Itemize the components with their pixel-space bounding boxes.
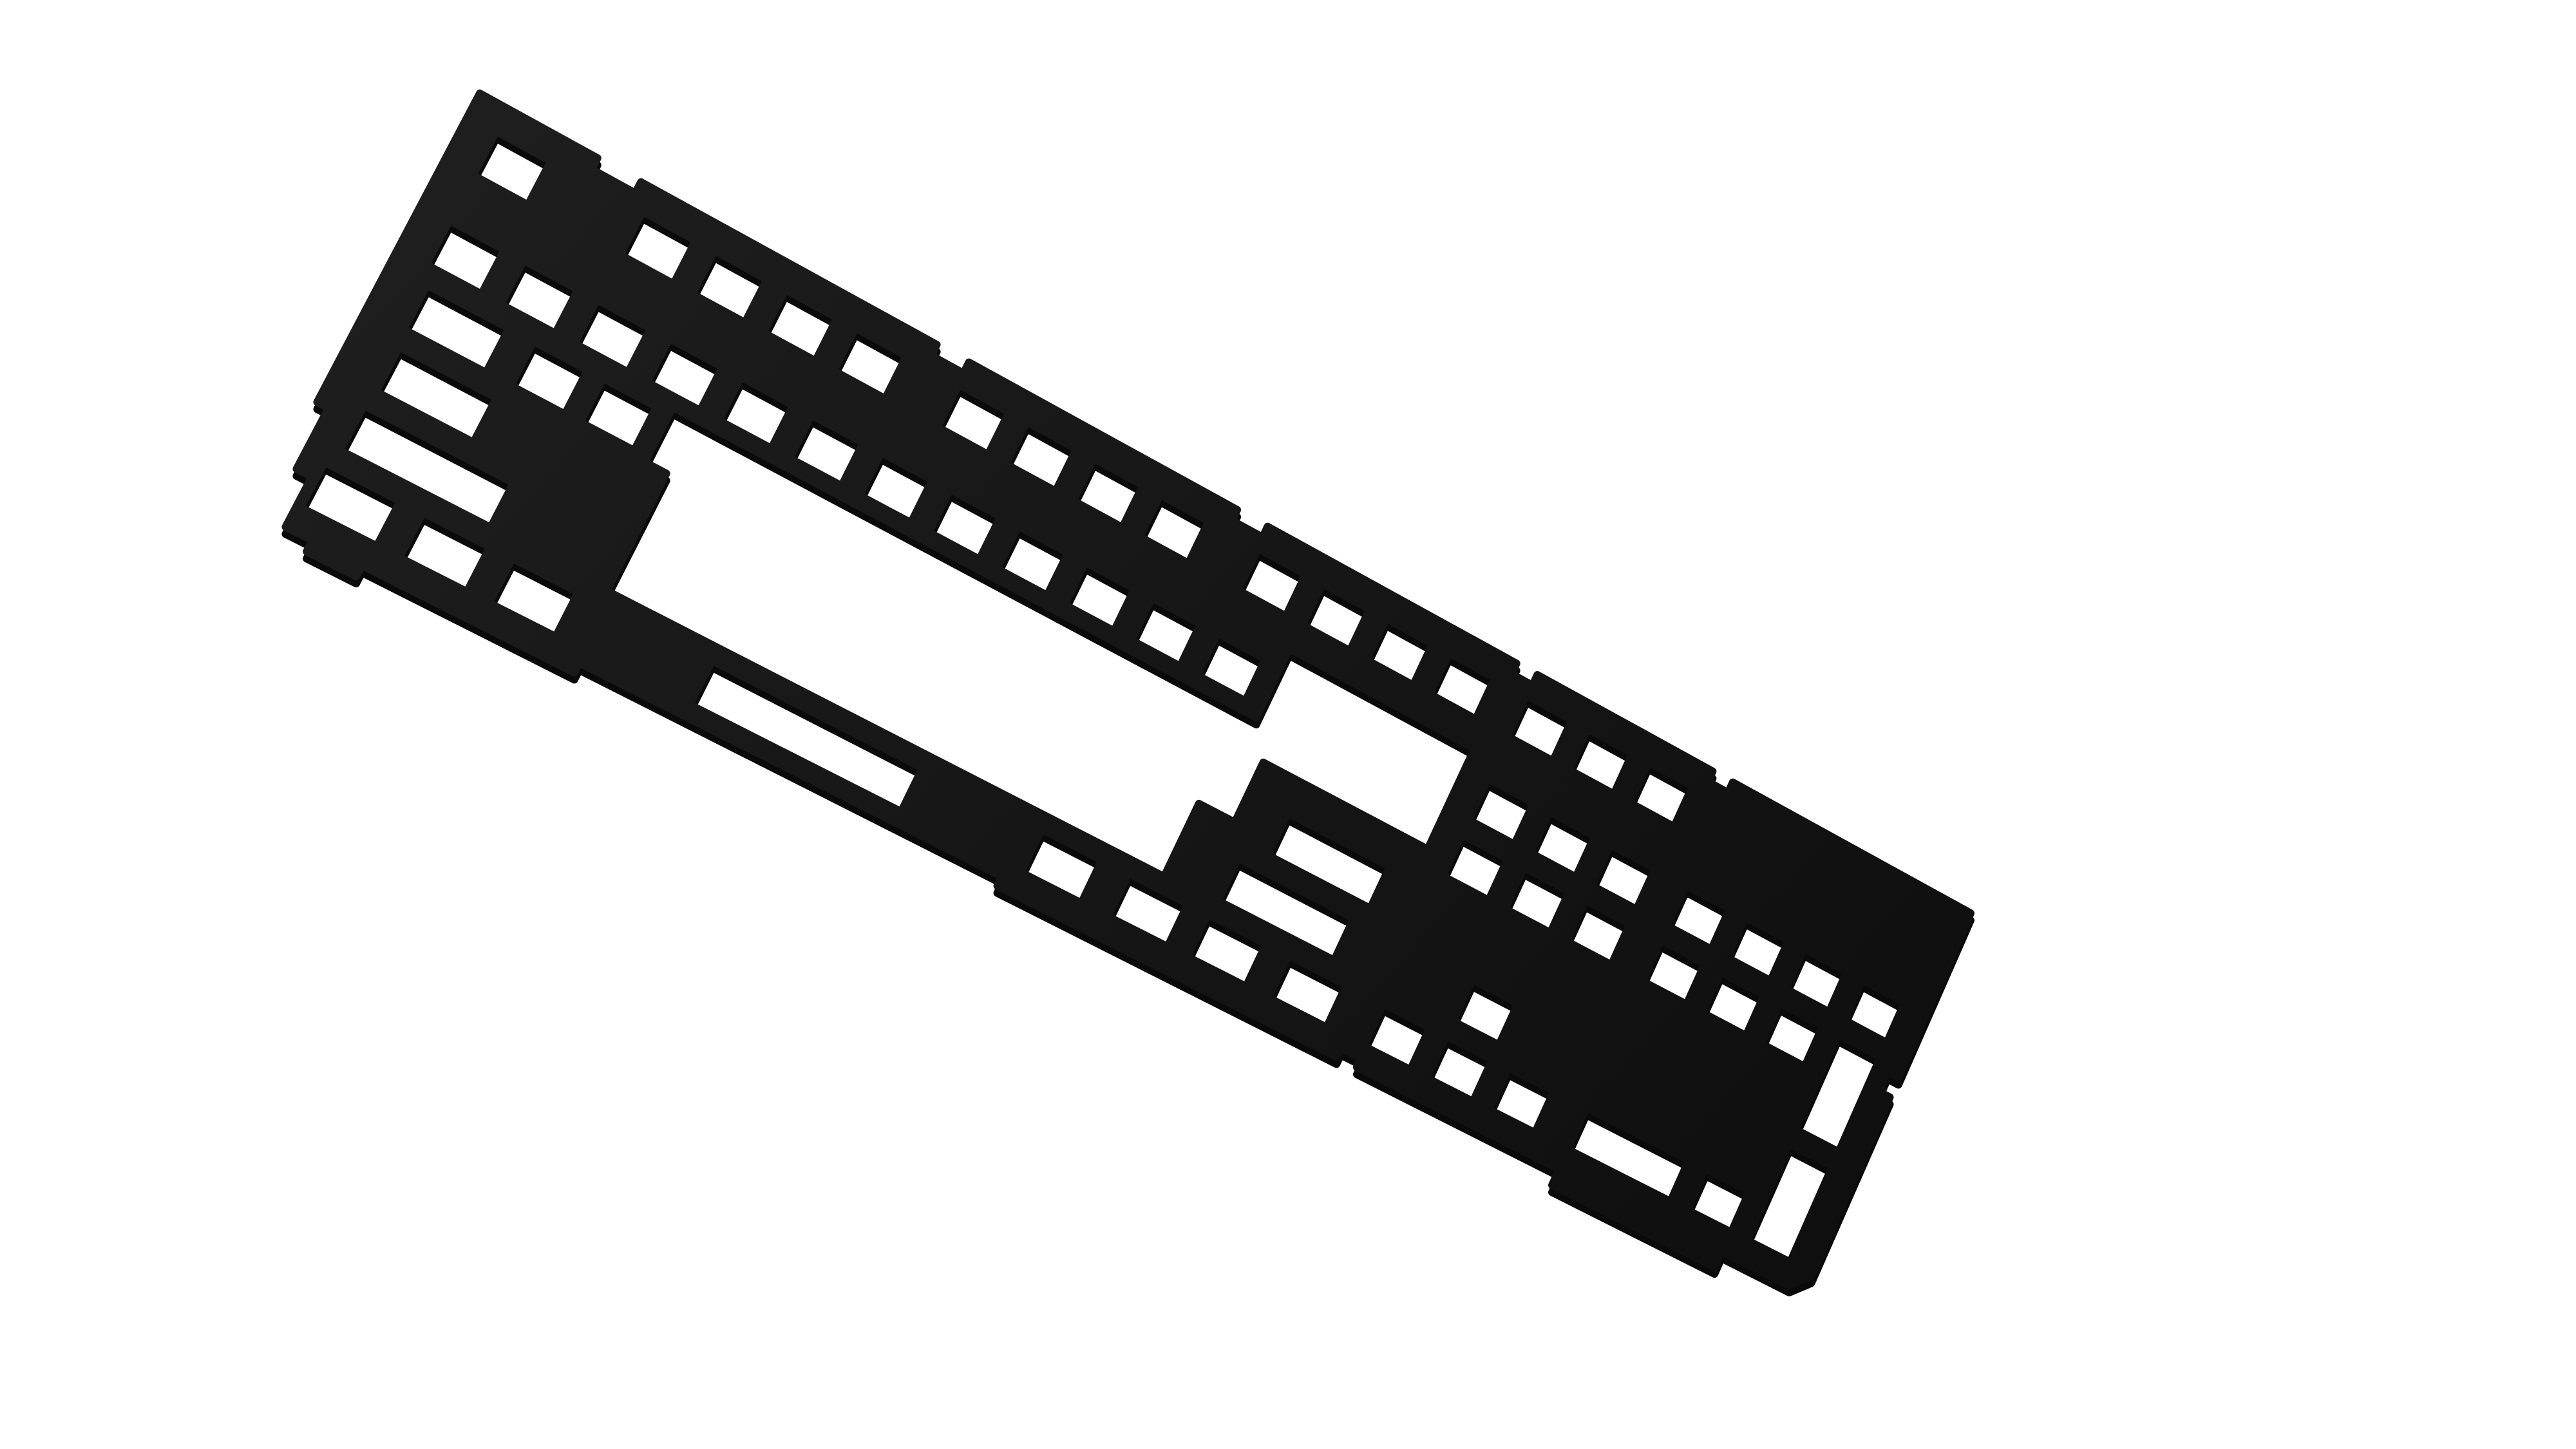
keyboard-plate-render	[0, 0, 2576, 1449]
keyboard-plate-figure	[0, 0, 2576, 1449]
background	[0, 0, 2576, 1449]
